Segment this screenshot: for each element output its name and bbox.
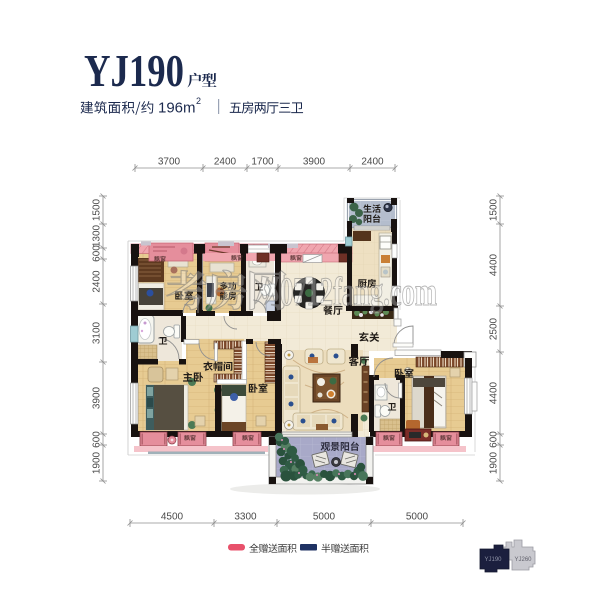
svg-text:3900: 3900 [92,386,103,409]
svg-text:5000: 5000 [313,512,336,523]
svg-text:1500: 1500 [489,198,500,221]
svg-text:4400: 4400 [489,381,500,404]
svg-text:3700: 3700 [158,157,181,168]
svg-text:4400: 4400 [489,253,500,276]
svg-text:3100: 3100 [92,321,103,344]
svg-text:4500: 4500 [161,512,184,523]
svg-text:2400: 2400 [214,157,237,168]
svg-text:0712fang.com: 0712fang.com [280,269,437,314]
svg-text:1900: 1900 [489,451,500,474]
svg-text:3300: 3300 [234,512,257,523]
svg-text:600: 600 [92,245,103,262]
svg-text:196m: 196m [158,100,196,117]
svg-text:2500: 2500 [489,317,500,340]
svg-text:YJ190: YJ190 [484,557,502,563]
svg-text:600: 600 [92,431,103,448]
svg-text:1500: 1500 [92,198,103,221]
svg-text:2: 2 [196,96,201,106]
svg-text:1300: 1300 [92,224,103,247]
svg-text:YJ190: YJ190 [84,45,184,96]
svg-text:5000: 5000 [406,512,429,523]
svg-text:600: 600 [489,431,500,448]
svg-text:3900: 3900 [303,157,326,168]
svg-text:1900: 1900 [92,451,103,474]
svg-text:2400: 2400 [361,157,384,168]
svg-text:2400: 2400 [92,270,103,293]
svg-text:YJ260: YJ260 [514,557,532,563]
svg-text:1700: 1700 [251,157,274,168]
